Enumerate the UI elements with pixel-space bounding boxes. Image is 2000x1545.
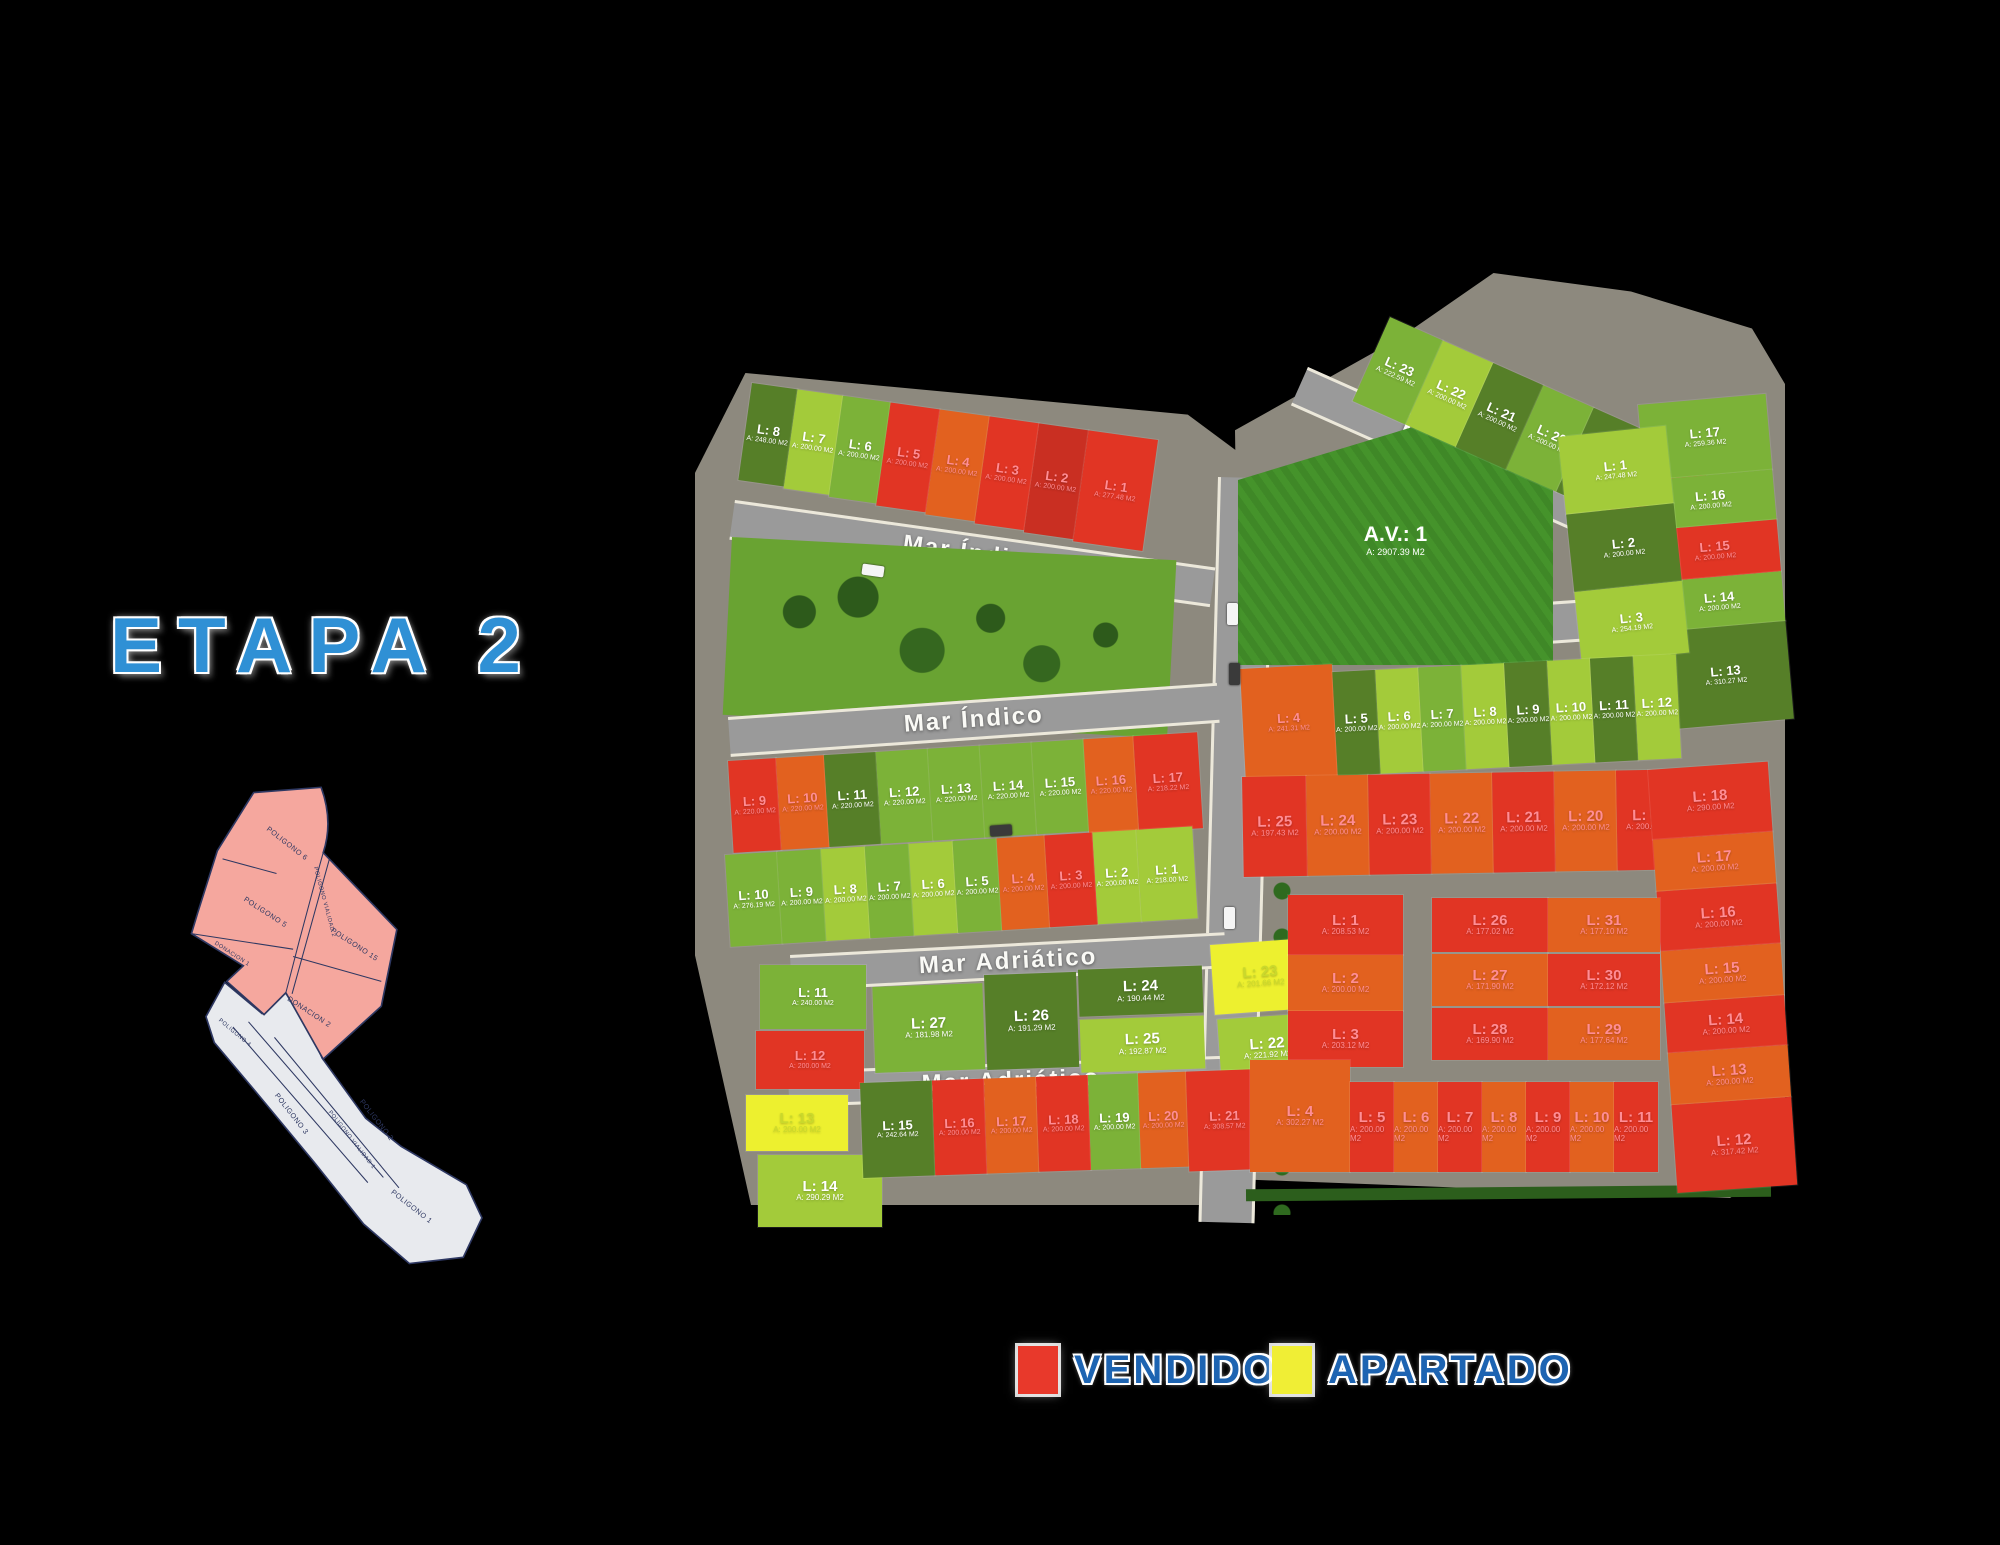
lot-west-mid-row1-16[interactable]: L: 16A: 220.00 M2 bbox=[1083, 736, 1139, 833]
lot-se-top-row-23[interactable]: L: 23A: 200.00 M2 bbox=[1368, 774, 1432, 875]
lot-west-mid-row2-5[interactable]: L: 5A: 200.00 M2 bbox=[953, 838, 1003, 933]
lot-area: A: 200.00 M2 bbox=[1636, 709, 1678, 719]
lot-area: A: 200.00 M2 bbox=[957, 887, 999, 897]
lot-label: L: 12 bbox=[795, 1049, 825, 1063]
legend-item-vendido: VENDIDO bbox=[1018, 1346, 1277, 1394]
lot-west-mid-row2-7[interactable]: L: 7A: 200.00 M2 bbox=[865, 844, 915, 939]
lot-area: A: 200.00 M2 bbox=[1699, 975, 1747, 987]
lot-label: L: 29 bbox=[1586, 1022, 1621, 1038]
lot-area: A: 197.43 M2 bbox=[1251, 829, 1299, 839]
lot-label: L: 30 bbox=[1586, 968, 1621, 984]
lot-area: A: 200.00 M2 bbox=[1570, 1126, 1614, 1144]
lot-label: L: 8 bbox=[1473, 705, 1497, 720]
site-map: Mar Índico Mar Índico Mar Rojo Mar Rojo … bbox=[690, 265, 1800, 1210]
lot-area: A: 200.00 M2 bbox=[1336, 725, 1378, 735]
canvas: ETAPA 2 POLIGONO 6 POLIGONO 5 DONACION 1… bbox=[0, 0, 2000, 1545]
lot-area: A: 200.00 M2 bbox=[939, 1129, 981, 1138]
lot-se-right-col-13[interactable]: L: 13A: 200.00 M2 bbox=[1668, 1045, 1791, 1105]
lot-area: A: 200.00 M2 bbox=[1376, 827, 1424, 837]
zone-se-bottom-row: L: 4A: 302.27 M2L: 5A: 200.00 M2L: 6A: 2… bbox=[1250, 1060, 1658, 1172]
legend-swatch-apartado bbox=[1272, 1346, 1312, 1394]
lot-west-bottom-row-16[interactable]: L: 16A: 200.00 M2 bbox=[932, 1079, 987, 1176]
lot-area: A: 200.00 M2 bbox=[1706, 1077, 1754, 1089]
legend-label-vendido: VENDIDO bbox=[1074, 1348, 1277, 1393]
lot-east-mid-row-11[interactable]: L: 11A: 200.00 M2 bbox=[1590, 656, 1638, 762]
lot-adriatico-island-26[interactable]: L: 26A: 191.29 M2 bbox=[984, 972, 1079, 1070]
lot-area: A: 200.00 M2 bbox=[1691, 863, 1739, 875]
lot-se-bottom-row-9[interactable]: L: 9A: 200.00 M2 bbox=[1526, 1082, 1570, 1172]
lot-label: L: 28 bbox=[1472, 1022, 1507, 1038]
lot-east-mid-row-7[interactable]: L: 7A: 200.00 M2 bbox=[1418, 665, 1466, 771]
lot-area: A: 200.00 M2 bbox=[1614, 1126, 1658, 1144]
lot-area: A: 241.31 M2 bbox=[1268, 724, 1310, 734]
lot-label: L: 6 bbox=[1403, 1110, 1430, 1126]
lot-label: L: 5 bbox=[1344, 712, 1368, 727]
lot-west-mid-row1-12[interactable]: L: 12A: 220.00 M2 bbox=[876, 749, 934, 844]
lot-se-island-31[interactable]: L: 31A: 177.10 M2 bbox=[1548, 898, 1660, 952]
lot-label: A.V.: 1 bbox=[1364, 523, 1427, 547]
lot-area: A: 248.00 M2 bbox=[746, 435, 788, 448]
lot-label: L: 4 bbox=[1277, 711, 1301, 726]
lot-se-top-row-20[interactable]: L: 20A: 200.00 M2 bbox=[1554, 770, 1618, 871]
lot-se-right-col-12[interactable]: L: 12A: 317.42 M2 bbox=[1671, 1097, 1797, 1193]
lot-area: A: 200.00 M2 bbox=[1438, 826, 1486, 836]
lot-label: L: 9 bbox=[743, 794, 767, 809]
lot-area: A: 254.19 M2 bbox=[1611, 623, 1653, 635]
lot-area: A: 220.00 M2 bbox=[734, 807, 776, 817]
lot-label: L: 2 bbox=[1332, 971, 1359, 987]
lot-se-top-row-22[interactable]: L: 22A: 200.00 M2 bbox=[1430, 773, 1494, 874]
lot-area: A: 169.90 M2 bbox=[1466, 1037, 1514, 1046]
lot-west-bottom-row-17[interactable]: L: 17A: 200.00 M2 bbox=[984, 1077, 1039, 1174]
lot-se-left-col-2[interactable]: L: 2A: 200.00 M2 bbox=[1288, 955, 1403, 1011]
lot-east-mid-row-10[interactable]: L: 10A: 200.00 M2 bbox=[1547, 659, 1595, 765]
lot-label: L: 8 bbox=[1491, 1110, 1518, 1126]
lot-area: A: 172.12 M2 bbox=[1580, 983, 1628, 992]
lot-area: A: 200.00 M2 bbox=[1314, 828, 1362, 838]
lot-west-mid-row2-9[interactable]: L: 9A: 200.00 M2 bbox=[777, 849, 827, 944]
inset-polygon-map: POLIGONO 6 POLIGONO 5 DONACION 1 POLIGON… bbox=[158, 778, 505, 1276]
lot-area: A: 200.00 M2 bbox=[869, 893, 911, 903]
lot-area: A: 200.00 M2 bbox=[781, 898, 823, 908]
lot-east-mid-row-9[interactable]: L: 9A: 200.00 M2 bbox=[1504, 661, 1552, 767]
lot-se-right-col-17[interactable]: L: 17A: 200.00 M2 bbox=[1653, 831, 1776, 891]
lot-area: A: 200.00 M2 bbox=[1551, 714, 1593, 724]
zone-adriatico-island: L: 27A: 181.98 M2L: 26A: 191.29 M2L: 24A… bbox=[872, 965, 1211, 1089]
lot-area: A: 177.64 M2 bbox=[1580, 1037, 1628, 1046]
lot-area: A: 302.27 M2 bbox=[1276, 1119, 1324, 1128]
lot-label: L: 27 bbox=[1472, 968, 1507, 984]
car bbox=[1229, 663, 1240, 685]
lot-adriatico-island-27[interactable]: L: 27A: 181.98 M2 bbox=[872, 983, 985, 1073]
lot-east-mid-row-4[interactable]: L: 4A: 241.31 M2 bbox=[1240, 664, 1338, 781]
lot-area: A: 290.00 M2 bbox=[1687, 803, 1735, 815]
lot-label: L: 5 bbox=[965, 874, 989, 889]
lot-west-mid-row1-14[interactable]: L: 14A: 220.00 M2 bbox=[980, 742, 1038, 837]
lot-label: L: 4 bbox=[1011, 871, 1035, 886]
lot-label: L: 13 bbox=[779, 1111, 814, 1127]
lot-area: A: 220.00 M2 bbox=[936, 795, 978, 805]
lot-west-mid-row2-10[interactable]: L: 10A: 276.19 M2 bbox=[725, 852, 783, 947]
lot-area: A: 200.00 M2 bbox=[773, 1126, 821, 1135]
lot-label: L: 7 bbox=[1447, 1110, 1474, 1126]
lot-se-island-29[interactable]: L: 29A: 177.64 M2 bbox=[1548, 1008, 1660, 1060]
lot-area: A: 200.00 M2 bbox=[985, 473, 1027, 486]
lot-se-bottom-row-7[interactable]: L: 7A: 200.00 M2 bbox=[1438, 1082, 1482, 1172]
lot-area: A: 181.98 M2 bbox=[905, 1031, 953, 1041]
lot-se-island-27[interactable]: L: 27A: 171.90 M2 bbox=[1432, 954, 1548, 1006]
lot-label: L: 9 bbox=[1516, 703, 1540, 718]
lot-area: A: 201.66 M2 bbox=[1237, 978, 1285, 990]
lot-se-bottom-row-4[interactable]: L: 4A: 302.27 M2 bbox=[1250, 1060, 1350, 1172]
zone-east-mid-row: L: 4A: 241.31 M2L: 5A: 200.00 M2L: 6A: 2… bbox=[1240, 646, 1681, 781]
lot-area: A: 200.00 M2 bbox=[1322, 986, 1370, 995]
lot-area: A: 200.00 M2 bbox=[1702, 1026, 1750, 1038]
lot-se-bottom-row-11[interactable]: L: 11A: 200.00 M2 bbox=[1614, 1082, 1658, 1172]
lot-west-mid-row1-17[interactable]: L: 17A: 218.22 M2 bbox=[1133, 732, 1203, 832]
lot-label: L: 7 bbox=[877, 880, 901, 895]
lot-west-mid-row1-15[interactable]: L: 15A: 220.00 M2 bbox=[1031, 739, 1089, 834]
lot-se-left-col-3[interactable]: L: 3A: 203.12 M2 bbox=[1288, 1011, 1403, 1067]
lot-label: L: 6 bbox=[921, 877, 945, 892]
car bbox=[990, 824, 1013, 837]
lot-area: A: 200.00 M2 bbox=[1094, 1124, 1136, 1133]
lot-area: A: 200.00 M2 bbox=[1034, 481, 1076, 494]
lot-west-mid-row2-1[interactable]: L: 1A: 218.00 M2 bbox=[1136, 826, 1198, 921]
legend-label-apartado: APARTADO bbox=[1328, 1348, 1573, 1393]
lot-east-inner-col-2[interactable]: L: 2A: 200.00 M2 bbox=[1566, 503, 1682, 592]
lot-area: A: 240.00 M2 bbox=[792, 1000, 834, 1008]
lot-area: A: 200.00 M2 bbox=[935, 465, 977, 478]
lot-se-island-28[interactable]: L: 28A: 169.90 M2 bbox=[1432, 1008, 1548, 1060]
legend-swatch-vendido bbox=[1018, 1346, 1058, 1394]
lot-area: A: 220.00 M2 bbox=[1091, 786, 1133, 796]
lot-area: A: 177.02 M2 bbox=[1466, 928, 1514, 937]
lot-area: A: 220.00 M2 bbox=[1040, 788, 1082, 798]
lot-se-top-row-21[interactable]: L: 21A: 200.00 M2 bbox=[1492, 772, 1556, 873]
lot-area: A: 220.00 M2 bbox=[782, 804, 824, 814]
lot-area: A: 218.22 M2 bbox=[1148, 784, 1190, 794]
lot-area: A: 200.00 M2 bbox=[791, 442, 833, 455]
lot-se-right-col-15[interactable]: L: 15A: 200.00 M2 bbox=[1661, 943, 1784, 1003]
lot-area: A: 200.00 M2 bbox=[1379, 723, 1421, 733]
lot-label: L: 3 bbox=[1059, 869, 1083, 884]
lot-east-mid-row-12[interactable]: L: 12A: 200.00 M2 bbox=[1633, 654, 1681, 760]
lot-label: L: 5 bbox=[1359, 1110, 1386, 1126]
lot-area: A: 276.19 M2 bbox=[733, 901, 775, 911]
lot-area: A: 200.00 M2 bbox=[1465, 718, 1507, 728]
lot-label: L: 31 bbox=[1586, 913, 1621, 929]
lot-area: A: 190.44 M2 bbox=[1117, 994, 1165, 1004]
lot-area: A: 200.00 M2 bbox=[886, 457, 928, 470]
lot-west-bottom-row-18[interactable]: L: 18A: 200.00 M2 bbox=[1036, 1075, 1091, 1172]
car bbox=[1224, 907, 1235, 929]
lot-west-mid-row1-10[interactable]: L: 10A: 220.00 M2 bbox=[776, 755, 830, 850]
lot-west-mid-row1-9[interactable]: L: 9A: 220.00 M2 bbox=[728, 758, 782, 853]
lot-area: A: 200.00 M2 bbox=[1003, 885, 1045, 895]
lot-east-inner-col-1[interactable]: L: 1A: 247.48 M2 bbox=[1558, 426, 1674, 515]
lot-area: A: 2907.39 M2 bbox=[1366, 547, 1425, 557]
lot-area: A: 277.48 M2 bbox=[1093, 491, 1135, 504]
lot-label: L: 2 bbox=[1105, 866, 1129, 881]
lot-area: A: 200.00 M2 bbox=[1350, 1126, 1394, 1144]
lot-area: A: 203.12 M2 bbox=[1322, 1042, 1370, 1051]
lot-label: L: 1 bbox=[1155, 863, 1179, 878]
lot-adriatico-left-12[interactable]: L: 12A: 200.00 M2 bbox=[756, 1031, 864, 1089]
lot-label: L: 11 bbox=[798, 986, 828, 1000]
lot-west-mid-row1-11[interactable]: L: 11A: 220.00 M2 bbox=[824, 752, 882, 847]
lot-area: A: 220.00 M2 bbox=[832, 801, 874, 811]
zone-west-bottom-row: L: 15A: 242.64 M2L: 16A: 200.00 M2L: 17A… bbox=[860, 1069, 1263, 1183]
lot-se-bottom-row-5[interactable]: L: 5A: 200.00 M2 bbox=[1350, 1082, 1394, 1172]
car bbox=[1227, 603, 1238, 625]
zone-adriatico-left: L: 11A: 240.00 M2L: 12A: 200.00 M2 bbox=[756, 963, 871, 1098]
lot-area: A: 200.00 M2 bbox=[1051, 882, 1093, 892]
lot-se-right-col-14[interactable]: L: 14A: 200.00 M2 bbox=[1664, 995, 1787, 1053]
lot-area: A: 200.00 M2 bbox=[1096, 879, 1138, 889]
street-label: Mar Índico bbox=[903, 701, 1045, 739]
lot-se-bottom-row-10[interactable]: L: 10A: 200.00 M2 bbox=[1570, 1082, 1614, 1172]
lot-west-bottom-row-20[interactable]: L: 20A: 200.00 M2 bbox=[1138, 1072, 1189, 1169]
lot-label: L: 26 bbox=[1472, 913, 1507, 929]
lot-east-mid-row-6[interactable]: L: 6A: 200.00 M2 bbox=[1375, 668, 1423, 774]
lot-label: L: 6 bbox=[1387, 709, 1411, 724]
lot-se-top-row-25[interactable]: L: 25A: 197.43 M2 bbox=[1242, 776, 1308, 877]
lot-area: A: 208.53 M2 bbox=[1322, 928, 1370, 937]
lot-area: A: 200.00 M2 bbox=[1593, 711, 1635, 721]
lot-area: A: 218.00 M2 bbox=[1146, 876, 1188, 886]
lot-area: A: 171.90 M2 bbox=[1466, 983, 1514, 992]
lot-label: L: 9 bbox=[789, 885, 813, 900]
lot-area: A: 200.00 M2 bbox=[1500, 825, 1548, 835]
lot-area: A: 200.00 M2 bbox=[825, 895, 867, 905]
lot-label: L: 14 bbox=[802, 1179, 837, 1195]
zone-se-top-row: L: 25A: 197.43 M2L: 24A: 200.00 M2L: 23A… bbox=[1242, 769, 1684, 877]
lot-se-island-26[interactable]: L: 26A: 177.02 M2 bbox=[1432, 898, 1548, 952]
lot-area: A: 200.00 M2 bbox=[1043, 1126, 1085, 1135]
lot-area: A: 191.29 M2 bbox=[1008, 1024, 1056, 1034]
lot-area: A: 200.00 M2 bbox=[1143, 1122, 1185, 1131]
lot-label: L: 1 bbox=[1332, 913, 1359, 929]
lot-se-bottom-row-8[interactable]: L: 8A: 200.00 M2 bbox=[1482, 1082, 1526, 1172]
lot-area: A: 290.29 M2 bbox=[796, 1194, 844, 1203]
lot-area: A: 200.00 M2 bbox=[1526, 1126, 1570, 1144]
lot-west-mid-row2-3[interactable]: L: 3A: 200.00 M2 bbox=[1044, 833, 1098, 928]
lot-se-right-col-16[interactable]: L: 16A: 200.00 M2 bbox=[1657, 883, 1781, 951]
lot-adriatico-island-25[interactable]: L: 25A: 192.87 M2 bbox=[1080, 1015, 1206, 1072]
lot-area: A: 200.00 M2 bbox=[1508, 716, 1550, 726]
lot-area: A: 200.00 M2 bbox=[1562, 824, 1610, 834]
lot-label: L: 21 bbox=[1209, 1109, 1240, 1124]
lot-se-bottom-row-6[interactable]: L: 6A: 200.00 M2 bbox=[1394, 1082, 1438, 1172]
lot-area: A: 242.64 M2 bbox=[877, 1131, 919, 1140]
lot-label: L: 11 bbox=[1619, 1110, 1653, 1126]
lot-area: A: 220.00 M2 bbox=[988, 792, 1030, 802]
lot-west-mid-row2-2[interactable]: L: 2A: 200.00 M2 bbox=[1092, 830, 1142, 925]
lot-label: L: 3 bbox=[1332, 1027, 1359, 1043]
lot-adriatico-island-24[interactable]: L: 24A: 190.44 M2 bbox=[1078, 965, 1204, 1016]
lot-east-mid-row-5[interactable]: L: 5A: 200.00 M2 bbox=[1332, 670, 1380, 776]
lot-area: A: 192.87 M2 bbox=[1119, 1047, 1167, 1057]
lot-se-top-row-24[interactable]: L: 24A: 200.00 M2 bbox=[1306, 775, 1370, 876]
lot-west-mid-row1-13[interactable]: L: 13A: 220.00 M2 bbox=[928, 746, 986, 841]
zone-se-left-col: L: 1A: 208.53 M2L: 2A: 200.00 M2L: 3A: 2… bbox=[1288, 895, 1403, 1067]
lot-area: A: 308.57 M2 bbox=[1204, 1123, 1246, 1132]
lot-adriatico-left-11[interactable]: L: 11A: 240.00 M2 bbox=[760, 965, 866, 1029]
lot-west-mid-row2-8[interactable]: L: 8A: 200.00 M2 bbox=[821, 846, 871, 941]
lot-label: L: 4 bbox=[1287, 1104, 1314, 1120]
lot-area: A: 200.00 M2 bbox=[1695, 919, 1743, 931]
lot-area: A: 177.10 M2 bbox=[1580, 928, 1628, 937]
lot-se-right-col-18[interactable]: L: 18A: 290.00 M2 bbox=[1648, 762, 1773, 840]
lot-se-left-col-1[interactable]: L: 1A: 208.53 M2 bbox=[1288, 895, 1403, 955]
lot-east-mid-row-8[interactable]: L: 8A: 200.00 M2 bbox=[1461, 663, 1509, 769]
lot-label: L: 9 bbox=[1535, 1110, 1562, 1126]
lot-west-mid-row2-4[interactable]: L: 4A: 200.00 M2 bbox=[996, 835, 1050, 930]
lot-area: A: 200.00 M2 bbox=[913, 890, 955, 900]
lot-area: A: 200.00 M2 bbox=[1422, 720, 1464, 730]
lot-label: L: 10 bbox=[1574, 1110, 1609, 1126]
lot-area: A: 220.00 M2 bbox=[884, 798, 926, 808]
lot-label: L: 7 bbox=[1430, 707, 1454, 722]
legend-item-apartado: APARTADO bbox=[1272, 1346, 1573, 1394]
lot-area: A: 247.48 M2 bbox=[1595, 471, 1637, 483]
lot-west-bottom-left-13[interactable]: L: 13A: 200.00 M2 bbox=[746, 1095, 848, 1151]
lot-se-island-30[interactable]: L: 30A: 172.12 M2 bbox=[1548, 954, 1660, 1006]
lot-area: A: 200.00 M2 bbox=[1482, 1126, 1526, 1144]
lot-area: A: 200.00 M2 bbox=[1604, 548, 1646, 560]
lot-area: A: 200.00 M2 bbox=[1394, 1126, 1438, 1144]
lot-area: A: 200.00 M2 bbox=[991, 1127, 1033, 1136]
lot-west-mid-row2-6[interactable]: L: 6A: 200.00 M2 bbox=[909, 841, 959, 936]
lot-area: A: 317.42 M2 bbox=[1711, 1147, 1759, 1159]
lot-west-bottom-row-19[interactable]: L: 19A: 200.00 M2 bbox=[1088, 1073, 1141, 1170]
lot-label: L: 8 bbox=[833, 882, 857, 897]
lot-area: A: 200.00 M2 bbox=[789, 1063, 831, 1071]
lot-area: A: 200.00 M2 bbox=[838, 450, 880, 463]
page-title: ETAPA 2 bbox=[110, 600, 537, 691]
lot-west-bottom-row-15[interactable]: L: 15A: 242.64 M2 bbox=[860, 1080, 935, 1177]
lot-area: A: 200.00 M2 bbox=[1438, 1126, 1482, 1144]
